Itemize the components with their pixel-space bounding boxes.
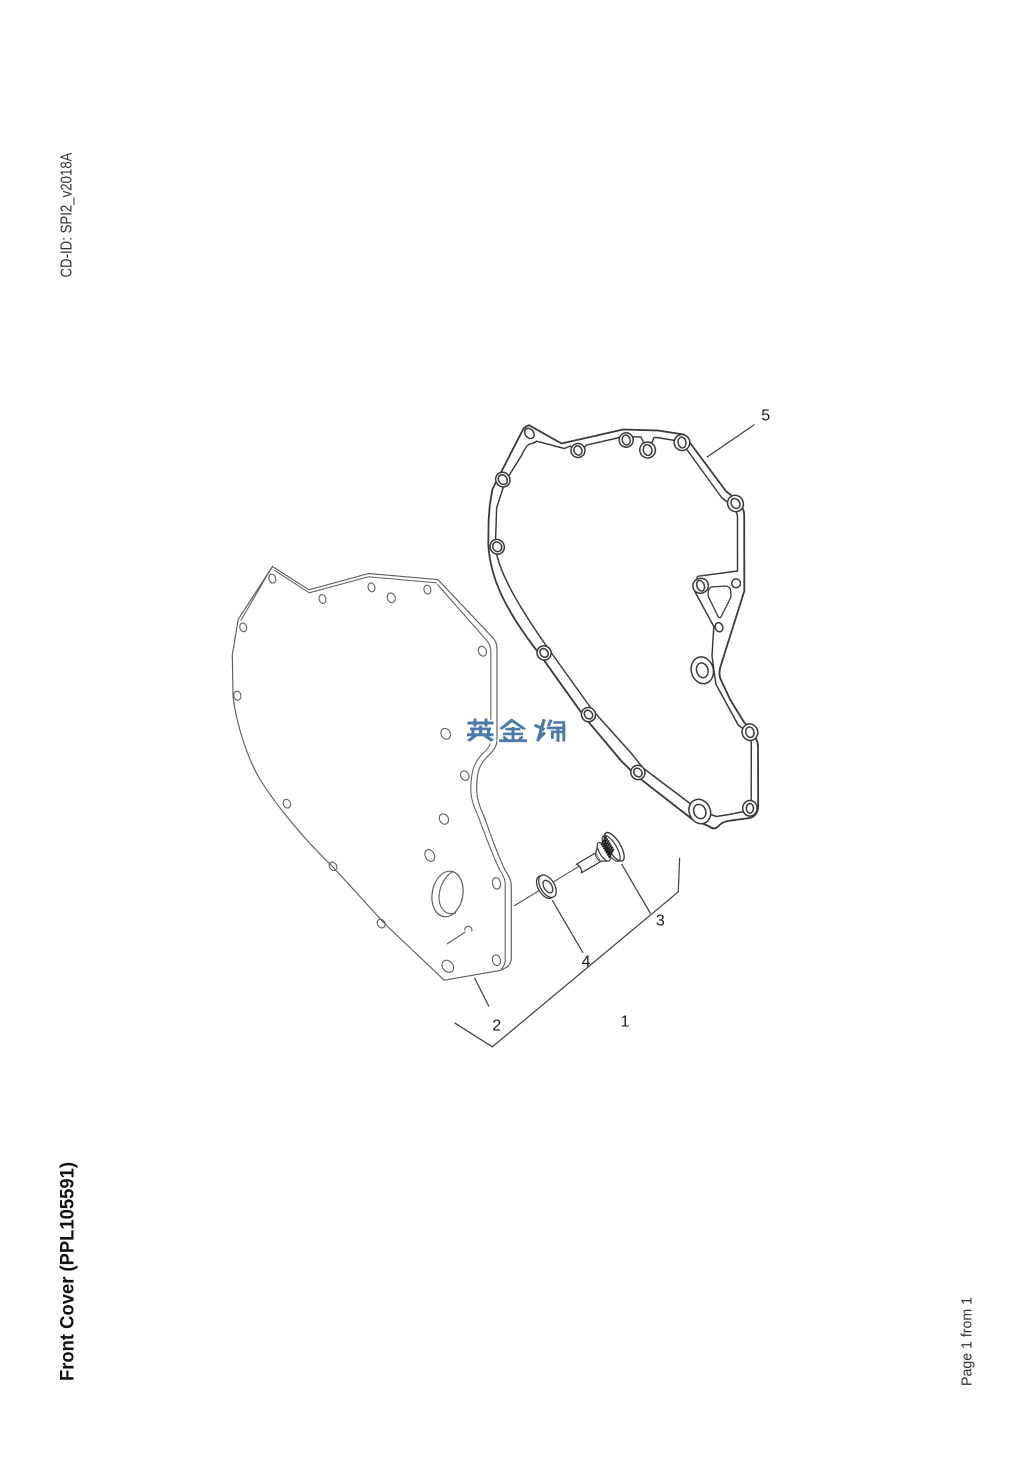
- svg-text:3: 3: [656, 913, 665, 930]
- svg-text:4: 4: [582, 954, 591, 971]
- svg-text:CD-ID: SPI2_v2018A: CD-ID: SPI2_v2018A: [59, 152, 76, 277]
- svg-text:5: 5: [761, 408, 770, 425]
- svg-text:Front Cover (PPL105591): Front Cover (PPL105591): [57, 1162, 79, 1381]
- svg-text:2: 2: [492, 1018, 501, 1035]
- svg-text:Page 1 from 1: Page 1 from 1: [959, 1297, 976, 1386]
- svg-text:1: 1: [620, 1013, 629, 1030]
